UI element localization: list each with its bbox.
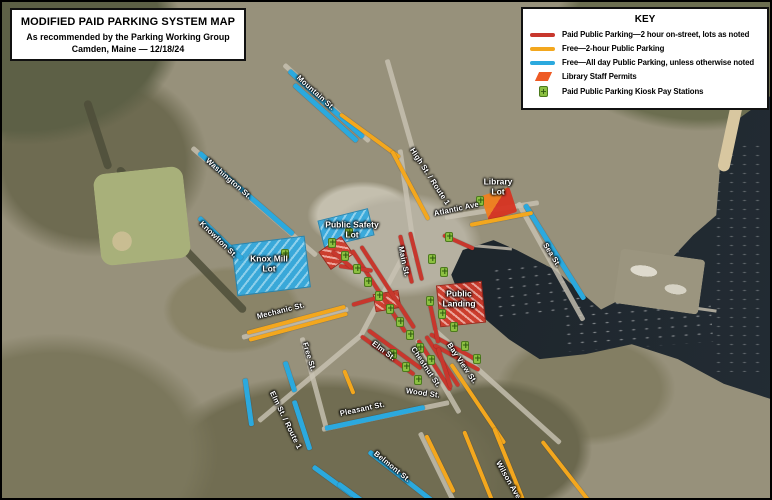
map-subtitle: As recommended by the Parking Working Gr… bbox=[16, 32, 240, 42]
moored-boats bbox=[712, 142, 767, 372]
kiosk-pay-station-icon: + bbox=[445, 232, 453, 242]
parking-segment-free2hr bbox=[342, 369, 355, 395]
street-label: Free St. bbox=[301, 341, 318, 372]
kiosk-pay-station-icon: + bbox=[402, 362, 410, 372]
key-item: Free—All day Public Parking, unless othe… bbox=[530, 58, 760, 67]
kiosk-icon: + bbox=[539, 86, 548, 97]
river bbox=[83, 99, 113, 170]
yellow-line-icon bbox=[530, 47, 555, 51]
key-item-label: Free—2-hour Public Parking bbox=[562, 44, 664, 53]
ballfield bbox=[92, 166, 191, 267]
kiosk-pay-station-icon: + bbox=[353, 264, 361, 274]
parking-segment-free2hr bbox=[462, 430, 494, 500]
map-title: MODIFIED PAID PARKING SYSTEM MAP bbox=[16, 16, 240, 28]
parking-segment-freeAllDay bbox=[292, 83, 359, 144]
parking-segment-freeAllDay bbox=[283, 361, 298, 393]
street-label: Knowlton St. bbox=[198, 219, 239, 259]
kiosk-pay-station-icon: + bbox=[406, 330, 414, 340]
street-label: Main St. bbox=[397, 246, 412, 278]
lot-label: Library Lot bbox=[484, 177, 513, 196]
lot-label: Public Safety Lot bbox=[325, 220, 378, 239]
key-item: Library Staff Permits bbox=[530, 72, 760, 81]
key-item: +Paid Public Parking Kiosk Pay Stations bbox=[530, 86, 760, 97]
map-date: Camden, Maine — 12/18/24 bbox=[16, 44, 240, 54]
red-line-icon bbox=[530, 33, 555, 37]
title-box: MODIFIED PAID PARKING SYSTEM MAP As reco… bbox=[10, 8, 246, 61]
kiosk-pay-station-icon: + bbox=[438, 309, 446, 319]
key-item-label: Free—All day Public Parking, unless othe… bbox=[562, 58, 754, 67]
boatyard bbox=[614, 248, 706, 314]
kiosk-pay-station-icon: + bbox=[450, 322, 458, 332]
key-item-label: Paid Public Parking Kiosk Pay Stations bbox=[562, 87, 703, 96]
key-item-label: Paid Public Parking—2 hour on-street, lo… bbox=[562, 30, 749, 39]
parking-segment-free2hr bbox=[540, 440, 590, 500]
key-title: KEY bbox=[530, 14, 760, 25]
kiosk-pay-station-icon: + bbox=[426, 296, 434, 306]
kiosk-pay-station-icon: + bbox=[386, 304, 394, 314]
dock bbox=[472, 244, 512, 250]
street-label: Washington St. bbox=[204, 156, 254, 201]
kiosk-pay-station-icon: + bbox=[473, 354, 481, 364]
parking-segment-free2hr bbox=[424, 434, 456, 493]
lot-label: Public Landing bbox=[442, 289, 475, 308]
key-item: Free—2-hour Public Parking bbox=[530, 44, 760, 53]
kiosk-pay-station-icon: + bbox=[341, 251, 349, 261]
lot-label: Knox Mill Lot bbox=[250, 254, 288, 273]
kiosk-pay-station-icon: + bbox=[428, 254, 436, 264]
kiosk-pay-station-icon: + bbox=[461, 341, 469, 351]
kiosk-pay-station-icon: + bbox=[396, 317, 404, 327]
base-road bbox=[385, 59, 416, 152]
key: KEY Paid Public Parking—2 hour on-street… bbox=[521, 7, 769, 110]
library-permit-icon bbox=[535, 72, 552, 81]
map-screenshot-frame: ++++++++++++++++++++++++Mountain St.Wash… bbox=[0, 0, 772, 500]
kiosk-pay-station-icon: + bbox=[414, 375, 422, 385]
kiosk-pay-station-icon: + bbox=[440, 267, 448, 277]
street-label: Belmont St. bbox=[372, 449, 412, 484]
key-items: Paid Public Parking—2 hour on-street, lo… bbox=[530, 30, 760, 97]
key-item: Paid Public Parking—2 hour on-street, lo… bbox=[530, 30, 760, 39]
parking-segment-freeAllDay bbox=[243, 378, 255, 426]
key-item-label: Library Staff Permits bbox=[562, 72, 637, 81]
kiosk-pay-station-icon: + bbox=[375, 291, 383, 301]
kiosk-pay-station-icon: + bbox=[364, 277, 372, 287]
blue-line-icon bbox=[530, 61, 555, 65]
